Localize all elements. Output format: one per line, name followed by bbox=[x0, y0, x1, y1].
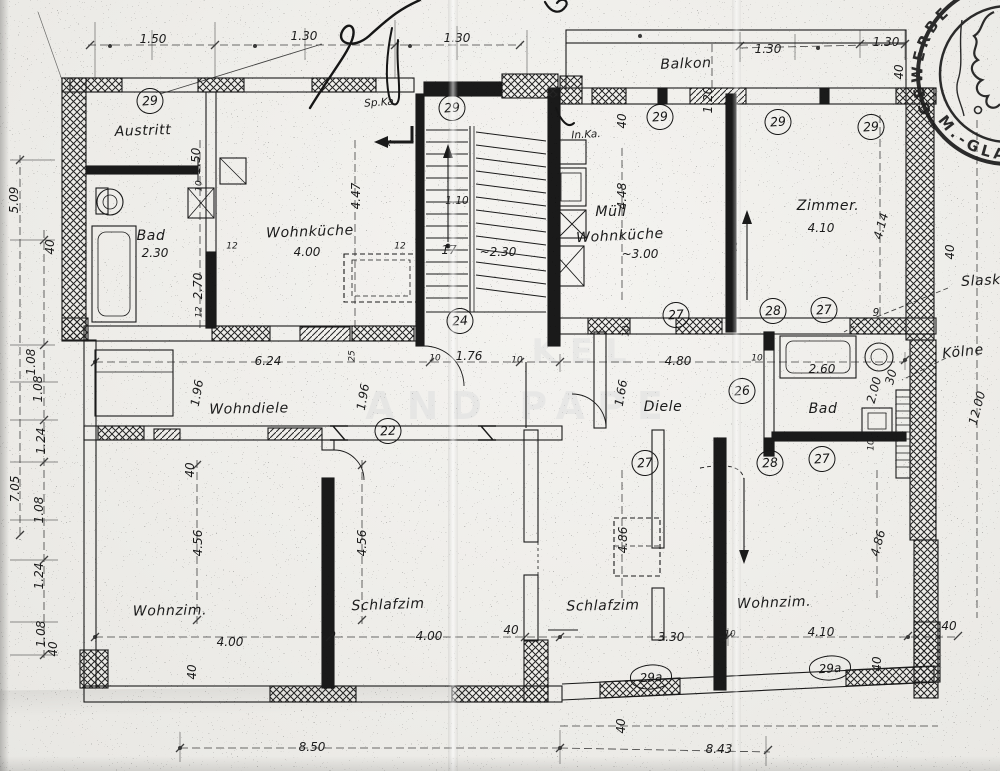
floorplan-drawing: GEWERBE M.-GLA bbox=[0, 0, 1000, 771]
floorplan-scan: KELAND PAPE bbox=[0, 0, 1000, 771]
photocopy-noise bbox=[0, 0, 1000, 771]
